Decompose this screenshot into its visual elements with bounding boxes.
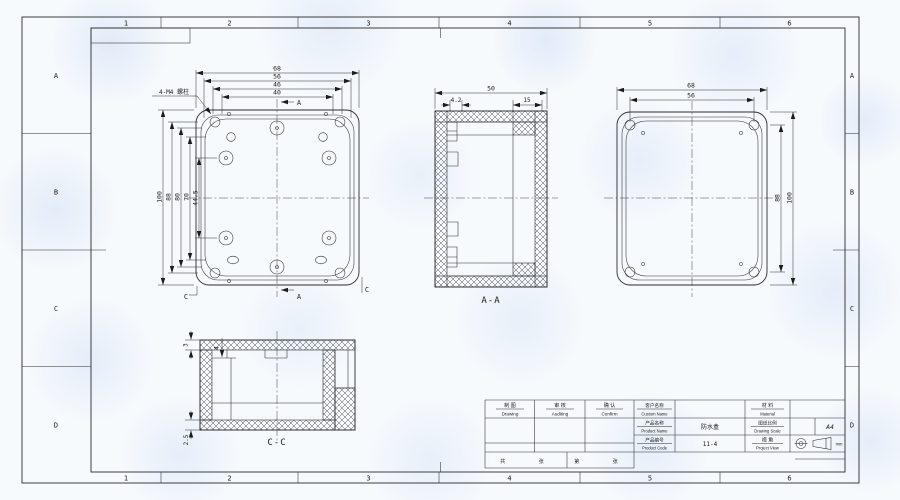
- tb-view-zh: 视 角: [762, 437, 774, 444]
- dim-aa-50: 50: [487, 85, 495, 93]
- drawing-sheet: 1 2 3 4 5 6 1 2 3 4 5 6 A B C D A B C D: [0, 0, 900, 500]
- tb-confirm-zh: 确 认: [604, 402, 616, 409]
- section-aa-view: 50 4.2 15 A-A: [424, 85, 558, 307]
- dim-cc-4: 4: [214, 346, 221, 350]
- callout-m4-bosses: 4-M4 螺柱: [159, 88, 189, 96]
- tb-pages-no: 第 张: [574, 458, 634, 465]
- title-block: 制 图 Drawing 审 核 Auditing 确 认 Confirm 共 张…: [485, 400, 845, 468]
- tb-product-code-zh: 产品编号: [645, 437, 664, 444]
- corner-title-box: [91, 28, 190, 43]
- section-a-label: A: [297, 99, 302, 107]
- mounting-bosses: [219, 121, 336, 274]
- dim-front-44-5: 44.5: [192, 190, 200, 206]
- dim-front-100: 100: [156, 191, 164, 203]
- dim-back-100: 100: [786, 192, 794, 204]
- front-view: 4-M4 螺柱 A A C C 68 56 46 40 100 88 80 70…: [152, 65, 369, 302]
- projection-symbol-icon: [795, 438, 832, 450]
- tb-product-name-zh: 产品名称: [645, 420, 664, 427]
- back-view: 68 56 88 100: [604, 82, 797, 298]
- grid-col-label: 3: [366, 20, 370, 28]
- grid-row-label: B: [54, 189, 58, 197]
- grid-col-label: 5: [648, 20, 652, 28]
- tb-drawing-zh: 制 图: [504, 402, 516, 409]
- tb-custom-name-en: Custom Name: [641, 412, 668, 417]
- dim-aa-4-2: 4.2: [451, 97, 462, 104]
- dim-front-56: 56: [273, 73, 281, 81]
- section-cc-view: 3 4 2.5 C-C: [183, 331, 356, 448]
- dim-front-40: 40: [273, 89, 281, 97]
- tb-auditing-zh: 审 核: [554, 402, 566, 409]
- section-c-label: C: [184, 293, 188, 301]
- dim-cc-3: 3: [183, 343, 190, 347]
- tb-scale-en: Drawing Scale: [754, 429, 781, 434]
- grid-col-label: 1: [124, 20, 128, 28]
- tb-material-zh: 材 料: [762, 402, 774, 409]
- grid-row-label: C: [54, 305, 58, 313]
- tb-confirm-en: Confirm: [601, 412, 617, 417]
- tb-material-en: Material: [760, 412, 775, 417]
- tb-unit: mm: [836, 442, 843, 447]
- dim-front-80: 80: [174, 193, 182, 201]
- grid-row-label: C: [850, 305, 854, 313]
- grid-col-label: 3: [366, 475, 370, 483]
- dim-back-56: 56: [687, 92, 695, 100]
- dim-front-46: 46: [273, 81, 281, 89]
- grid-row-label: B: [850, 189, 854, 197]
- grid-col-label: 2: [227, 475, 231, 483]
- tb-view-en: Project View: [756, 446, 779, 451]
- front-view-outline: [196, 110, 359, 285]
- grid-row-label: A: [850, 72, 855, 80]
- tb-product-code-en: Product Code: [642, 446, 668, 451]
- tb-auditing-en: Auditing: [552, 412, 569, 417]
- grid-col-label: 5: [648, 475, 652, 483]
- section-c-label: C: [365, 286, 369, 294]
- grid-col-label: 4: [507, 475, 511, 483]
- dim-aa-15: 15: [523, 97, 531, 104]
- grid-row-label: A: [54, 72, 59, 80]
- dim-front-70: 70: [183, 193, 191, 201]
- tb-product-code-value: 11-4: [703, 441, 718, 448]
- dim-front-88: 88: [165, 193, 173, 201]
- grid-col-label: 4: [507, 20, 511, 28]
- grid-col-label: 6: [787, 475, 791, 483]
- section-aa-title: A-A: [481, 296, 500, 306]
- tb-scale-zh: 图纸比例: [758, 420, 777, 427]
- dim-back-68: 68: [687, 82, 695, 90]
- dim-front-68: 68: [273, 65, 281, 73]
- grid-col-label: 6: [787, 20, 791, 28]
- section-cc-title: C-C: [267, 438, 286, 448]
- dim-back-88: 88: [774, 194, 782, 202]
- tb-product-name-value: 防水盒: [701, 423, 719, 431]
- dim-cc-2-5: 2.5: [183, 434, 190, 445]
- section-a-label: A: [297, 293, 302, 301]
- tb-pages-total: 共 张: [500, 458, 560, 465]
- grid-col-label: 1: [124, 475, 128, 483]
- tb-product-name-en: Product Name: [641, 429, 668, 434]
- tb-drawing-en: Drawing: [502, 412, 519, 417]
- tb-custom-name-zh: 客户名称: [645, 402, 664, 409]
- grid-col-label: 2: [227, 20, 231, 28]
- grid-row-label: D: [850, 422, 854, 430]
- tb-paper-size: A4: [825, 423, 834, 431]
- grid-row-label: D: [54, 422, 58, 430]
- section-aa-outline: [435, 111, 547, 287]
